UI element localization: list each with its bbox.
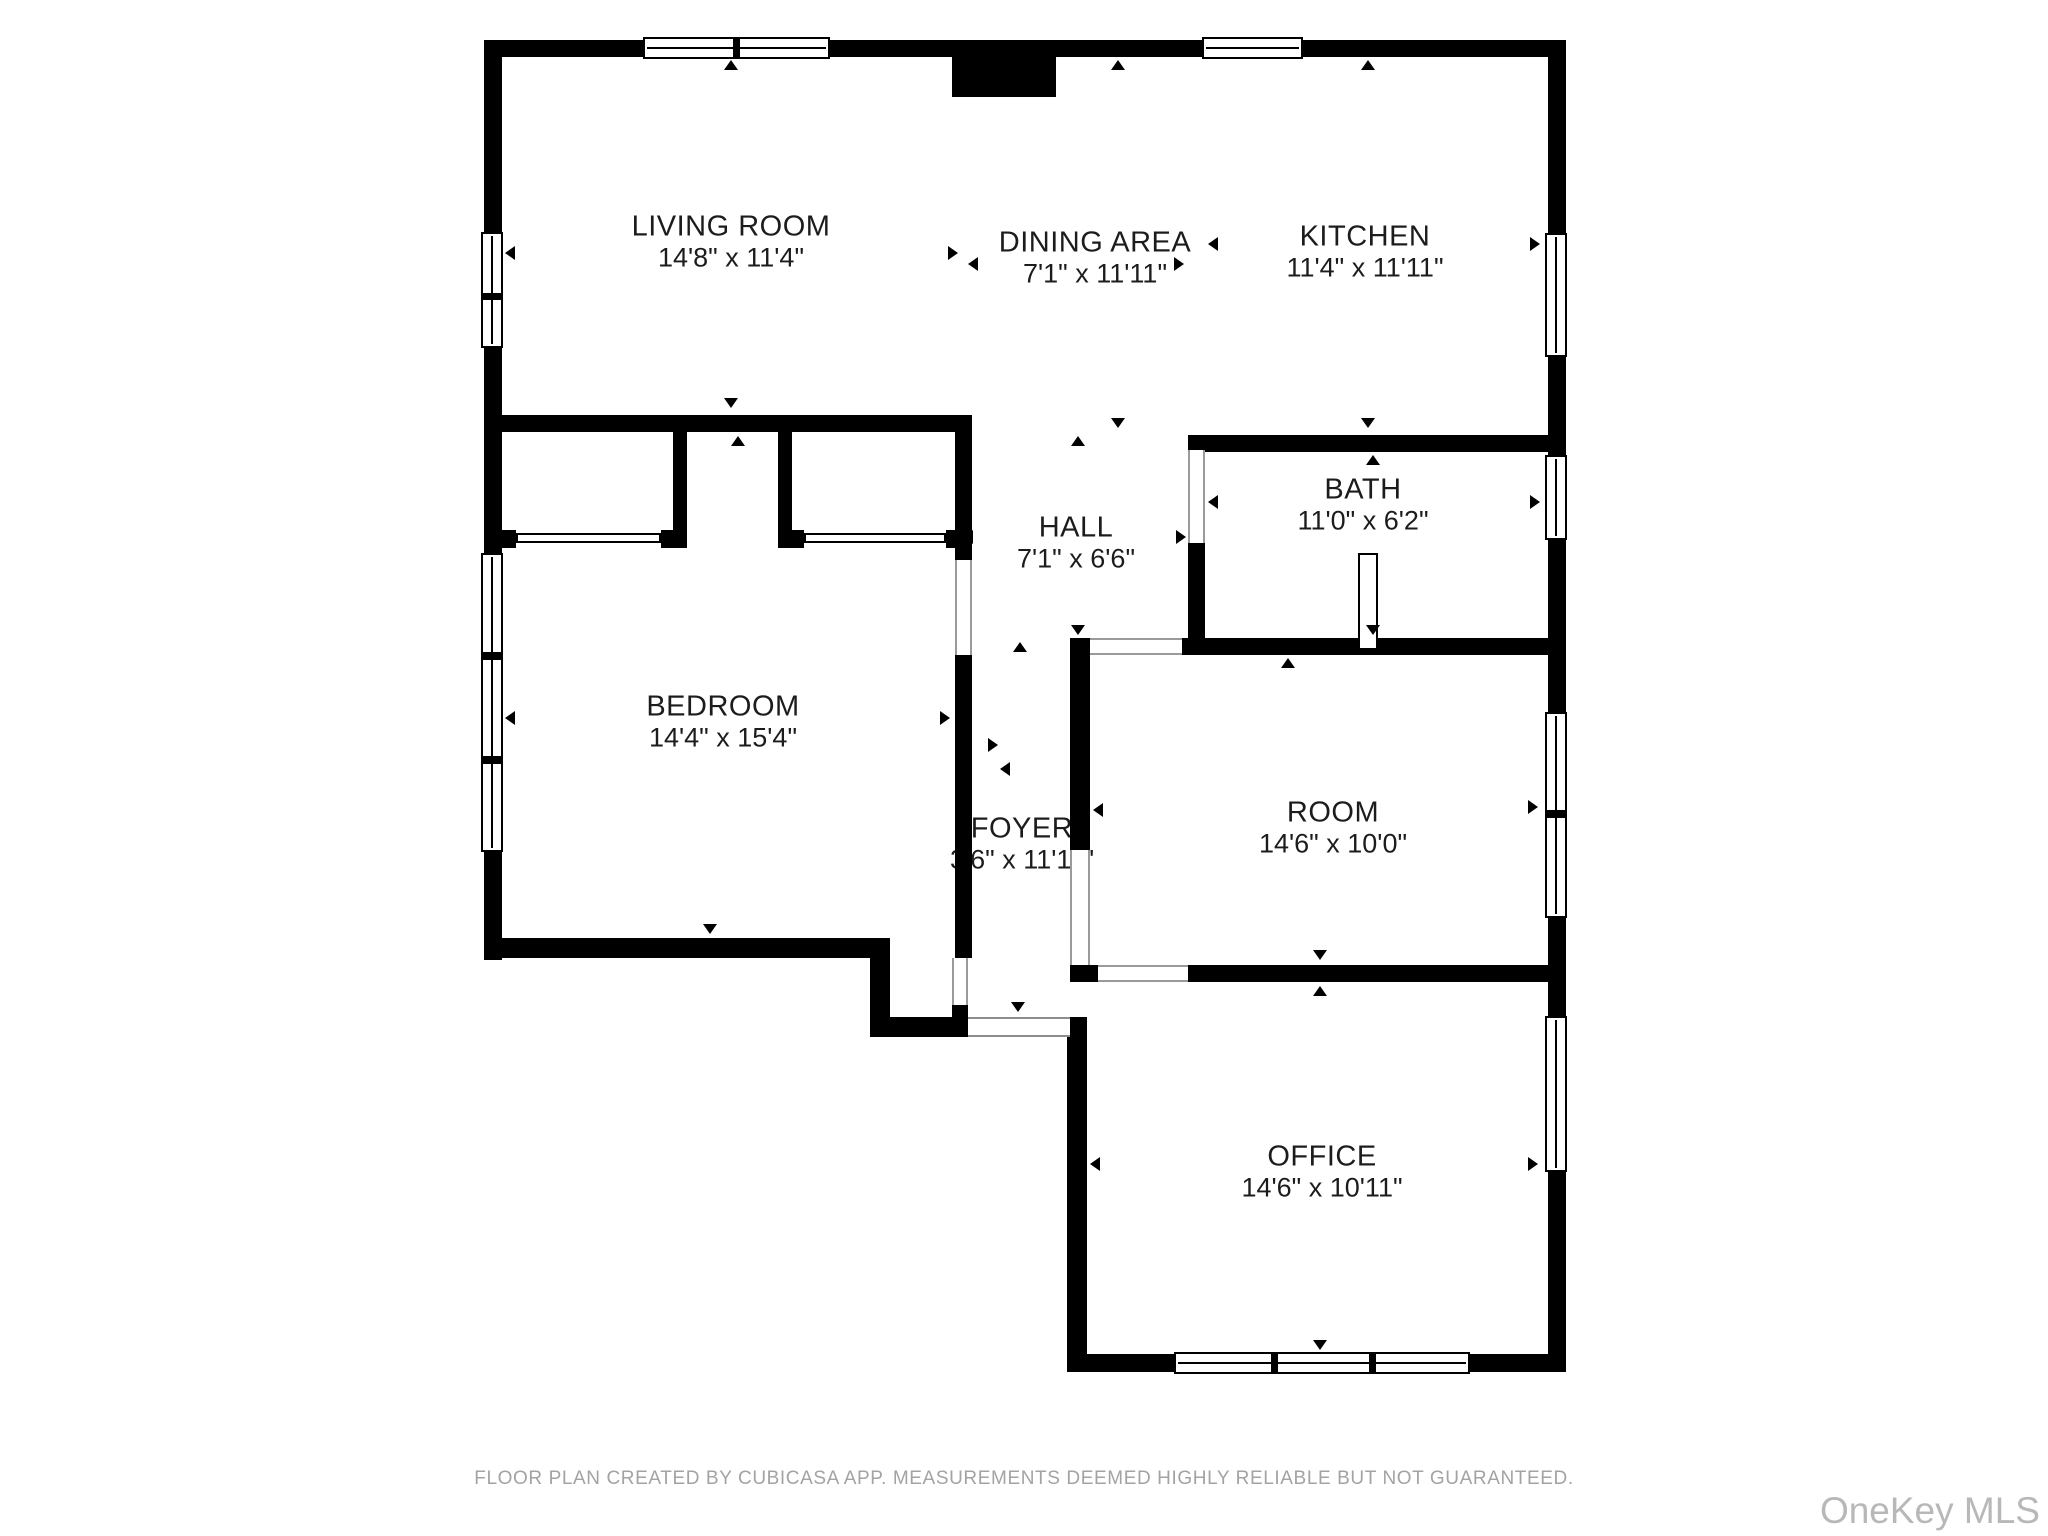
- room-dims: 14'6" x 10'11": [1241, 1173, 1402, 1204]
- wall-bedroom-right: [955, 415, 972, 958]
- arrow-up-icon: [1281, 658, 1295, 668]
- window-line: [491, 557, 493, 848]
- arrow-down-icon: [1313, 1340, 1327, 1350]
- arrow-right-icon: [940, 711, 950, 725]
- arrow-right-icon: [1528, 1157, 1538, 1171]
- room-label-bath: BATH 11'0" x 6'2": [1297, 474, 1428, 537]
- closet2-sliding-door: [804, 533, 946, 543]
- arrow-left-icon: [1090, 1157, 1100, 1171]
- wall-closet1-stub-right: [661, 530, 687, 548]
- arrow-left-icon: [1208, 495, 1218, 509]
- vestibule-opening: [952, 958, 968, 1005]
- room-dims: 14'6" x 10'0": [1259, 829, 1407, 860]
- room-name: ROOM: [1259, 797, 1407, 829]
- window-line: [1555, 237, 1557, 353]
- arrow-up-icon: [1313, 986, 1327, 996]
- room-dims: 11'0" x 6'2": [1297, 506, 1428, 537]
- room-label-office: OFFICE 14'6" x 10'11": [1241, 1141, 1402, 1204]
- arrow-down-icon: [1313, 950, 1327, 960]
- arrow-up-icon: [1366, 455, 1380, 465]
- room-name: OFFICE: [1241, 1141, 1402, 1173]
- arrow-right-icon: [1528, 800, 1538, 814]
- room-name: LIVING ROOM: [632, 211, 831, 243]
- arrow-up-icon: [1111, 60, 1125, 70]
- wall-bedroom-bottom: [484, 938, 890, 958]
- room-label-bedroom: BEDROOM 14'4" x 15'4": [646, 691, 799, 754]
- arrow-left-icon: [505, 246, 515, 260]
- arrow-up-icon: [1071, 436, 1085, 446]
- window-line: [1555, 1020, 1557, 1168]
- arrow-down-icon: [1366, 625, 1380, 635]
- arrow-down-icon: [1111, 418, 1125, 428]
- window-line: [1206, 47, 1299, 49]
- arrow-right-icon: [1174, 257, 1184, 271]
- arrow-down-icon: [1361, 418, 1375, 428]
- arrow-down-icon: [724, 398, 738, 408]
- window-mullion: [733, 39, 740, 57]
- window-mullion: [1271, 1354, 1278, 1372]
- window-line: [1178, 1362, 1466, 1364]
- room-dims: 11'4" x 11'11": [1286, 253, 1443, 284]
- window-mullion: [483, 293, 501, 300]
- bedroom-door-opening: [955, 560, 972, 655]
- arrow-left-icon: [1000, 762, 1010, 776]
- room-label-room: ROOM 14'6" x 10'0": [1259, 797, 1407, 860]
- wall-bath-top: [1188, 435, 1566, 452]
- room-label-kitchen: KITCHEN 11'4" x 11'11": [1286, 221, 1443, 284]
- window-mullion: [483, 756, 501, 764]
- arrow-down-icon: [1071, 625, 1085, 635]
- arrow-left-icon: [1208, 237, 1218, 251]
- room-label-living-room: LIVING ROOM 14'8" x 11'4": [632, 211, 831, 274]
- room-dims: 14'8" x 11'4": [632, 243, 831, 274]
- wall-living-bedroom-divider: [484, 415, 972, 432]
- room-name: HALL: [1017, 512, 1135, 544]
- arrow-left-icon: [505, 711, 515, 725]
- wall-closet2-stub-left: [778, 530, 804, 548]
- arrow-right-icon: [1176, 530, 1186, 544]
- room-name: BEDROOM: [646, 691, 799, 723]
- bath-partition: [1358, 553, 1378, 650]
- arrow-left-icon: [968, 257, 978, 271]
- room-dims: 7'1" x 11'11": [999, 259, 1191, 290]
- arrow-up-icon: [1361, 60, 1375, 70]
- mls-watermark: OneKey MLS: [1820, 1490, 2040, 1532]
- arrow-down-icon: [1011, 1002, 1025, 1012]
- arrow-left-icon: [1093, 803, 1103, 817]
- room-name: BATH: [1297, 474, 1428, 506]
- room-name: DINING AREA: [999, 227, 1191, 259]
- wall-closet2-left: [778, 432, 792, 532]
- room-door-opening: [1070, 850, 1090, 965]
- arrow-right-icon: [1530, 237, 1540, 251]
- room-office-passage: [1098, 965, 1188, 982]
- window-mullion: [1547, 810, 1565, 818]
- arrow-left-icon: [963, 530, 973, 544]
- window-mullion: [1369, 1354, 1376, 1372]
- arrow-up-icon: [724, 60, 738, 70]
- hall-room-passage: [1090, 638, 1182, 655]
- arrow-up-icon: [1013, 642, 1027, 652]
- wall-office-left: [1067, 1017, 1087, 1372]
- arrow-right-icon: [988, 738, 998, 752]
- wall-closet1-right: [673, 432, 687, 532]
- wall-vestibule-stub: [952, 1005, 968, 1037]
- wall-chimney: [952, 57, 1056, 97]
- room-label-dining-area: DINING AREA 7'1" x 11'11": [999, 227, 1191, 290]
- room-name: KITCHEN: [1286, 221, 1443, 253]
- arrow-right-icon: [948, 246, 958, 260]
- room-label-hall: HALL 7'1" x 6'6": [1017, 512, 1135, 575]
- room-dims: 14'4" x 15'4": [646, 723, 799, 754]
- wall-closet1-stub-left: [502, 530, 516, 548]
- bath-door-opening: [1188, 450, 1205, 543]
- closet1-sliding-door: [516, 533, 661, 543]
- entry-opening: [968, 1017, 1070, 1037]
- footer-disclaimer: FLOOR PLAN CREATED BY CUBICASA APP. MEAS…: [0, 1468, 2048, 1490]
- window-line: [1555, 459, 1557, 536]
- floor-plan-page: LIVING ROOM 14'8" x 11'4" DINING AREA 7'…: [0, 0, 2048, 1536]
- window-mullion: [483, 652, 501, 660]
- window-line: [491, 236, 493, 344]
- arrow-right-icon: [1530, 495, 1540, 509]
- arrow-down-icon: [703, 924, 717, 934]
- arrow-up-icon: [731, 436, 745, 446]
- room-dims: 7'1" x 6'6": [1017, 544, 1135, 575]
